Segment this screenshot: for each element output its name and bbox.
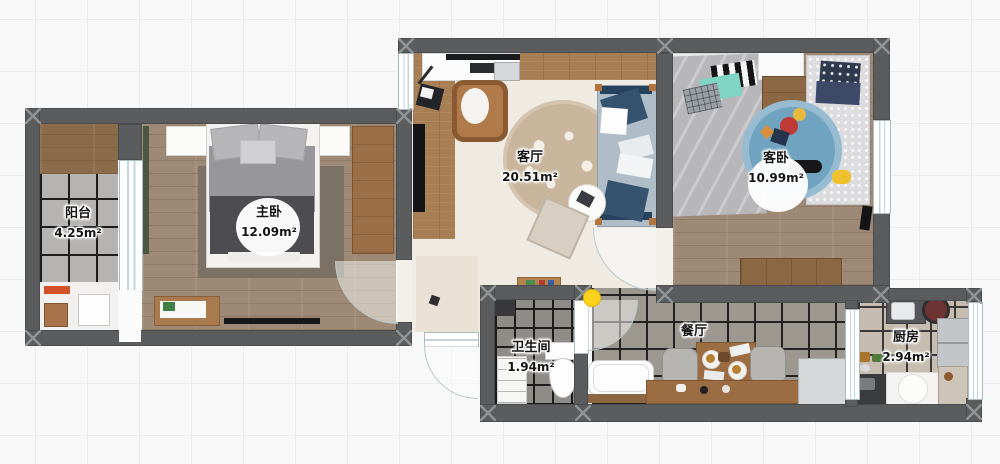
kitchen-food (872, 354, 882, 362)
room-label-bathroom: 卫生间 1.94m² (507, 338, 554, 377)
room-area: 12.09m² (241, 223, 297, 242)
wall-corner-mark (657, 287, 673, 303)
wall-corner-mark (25, 330, 41, 346)
wall-corner-mark (25, 108, 41, 124)
wardrobe[interactable] (352, 126, 394, 254)
balcony-orange-item (44, 286, 70, 294)
basket[interactable] (44, 303, 68, 327)
printer (494, 62, 520, 81)
wall (845, 300, 858, 309)
wall (480, 285, 495, 422)
room-area: 4.25m² (54, 224, 101, 243)
balcony-sill (119, 290, 141, 342)
wall (396, 108, 412, 260)
wall-corner-mark (398, 38, 414, 54)
balcony-window[interactable] (119, 160, 143, 292)
room-name: 客厅 (517, 150, 543, 165)
room-label-living: 客厅 20.51m² (502, 148, 558, 187)
wall (25, 108, 40, 346)
keyboard (470, 63, 496, 73)
doorway-master (396, 260, 412, 322)
wall (398, 38, 890, 53)
room-area: 2.94m² (882, 348, 929, 367)
food (706, 354, 715, 363)
room-label-balcony: 阳台 4.25m² (54, 204, 101, 243)
chair-cushion (461, 88, 489, 124)
sofa-leg (649, 84, 656, 91)
kitchen-sliding-door[interactable] (845, 309, 860, 400)
wall-corner-mark (874, 38, 890, 54)
balcony-wood-strip (40, 124, 118, 174)
floor-plan: 阳台 4.25m² 主卧 12.09m² 客厅 20.51m² 客卧 10.99… (0, 0, 1000, 464)
bench-item (676, 384, 686, 392)
room-label-dining: 餐厅 (681, 322, 707, 342)
room-area: 20.51m² (502, 168, 558, 187)
room-name: 客卧 (763, 151, 789, 166)
dining-chair-right[interactable] (750, 346, 786, 384)
bathtub-base (588, 394, 652, 403)
wall (656, 53, 673, 228)
wall-corner-mark (966, 288, 982, 304)
living-window[interactable] (398, 53, 414, 110)
bath-corner-unit (495, 300, 515, 316)
wall (574, 352, 588, 405)
wall-corner-mark (873, 287, 889, 303)
marker-dot-icon[interactable] (583, 289, 601, 307)
kitchen-window[interactable] (968, 302, 983, 400)
wall-corner-mark (966, 404, 982, 420)
shelf-item (944, 372, 953, 381)
entry-mat (416, 256, 478, 332)
wall (873, 212, 890, 288)
book-green (163, 302, 175, 311)
counter-sink-small (859, 378, 875, 390)
room-name: 阳台 (65, 206, 91, 221)
guest-window[interactable] (873, 120, 891, 214)
room-area: 10.99m² (748, 169, 804, 188)
rug-hand (832, 170, 851, 184)
wall (480, 404, 982, 422)
guest-closet[interactable] (740, 258, 842, 288)
doorway-guest (656, 228, 673, 290)
bench-item (722, 385, 730, 393)
room-label-kitchen: 厨房 2.94m² (882, 328, 929, 367)
bathtub-inner (593, 364, 649, 392)
wall-corner-mark (396, 330, 412, 346)
bowl (718, 352, 730, 362)
room-name: 卫生间 (511, 340, 550, 355)
food (732, 365, 741, 374)
wall-corner-mark (480, 405, 496, 421)
bench-item (700, 386, 708, 394)
throw-white (600, 107, 628, 135)
tv-master[interactable] (224, 318, 320, 324)
rug-umbrella-yellow (793, 108, 806, 121)
pillow-navy (815, 81, 860, 105)
pillow-small (240, 140, 276, 164)
wall-corner-mark (396, 108, 412, 124)
wall (25, 330, 412, 346)
wall (118, 124, 142, 160)
kitchen-bowl (860, 364, 870, 372)
wall (888, 288, 972, 301)
kitchen-shelf (938, 366, 968, 406)
monitor (446, 54, 520, 60)
entry-door-swing[interactable] (424, 345, 478, 399)
laundry-tray[interactable] (78, 294, 110, 326)
room-area: 1.94m² (507, 358, 554, 377)
room-label-guest: 客卧 10.99m² (748, 149, 804, 188)
wall (25, 108, 412, 124)
kitchen-fridge[interactable] (937, 318, 969, 368)
wall-corner-mark (480, 285, 496, 301)
curtain-strip (143, 126, 149, 254)
wall-corner-mark (657, 38, 673, 54)
room-name: 餐厅 (681, 324, 707, 339)
dining-fridge[interactable] (798, 358, 848, 406)
sink-basin (891, 302, 915, 320)
sofa-leg (649, 218, 656, 225)
room-label-master: 主卧 12.09m² (241, 203, 297, 242)
sofa-leg (595, 84, 602, 91)
counter-appliance (898, 374, 928, 404)
wall-corner-mark (575, 405, 591, 421)
room-name: 主卧 (256, 205, 282, 220)
room-name: 厨房 (893, 330, 919, 345)
tv-living[interactable] (413, 124, 425, 212)
